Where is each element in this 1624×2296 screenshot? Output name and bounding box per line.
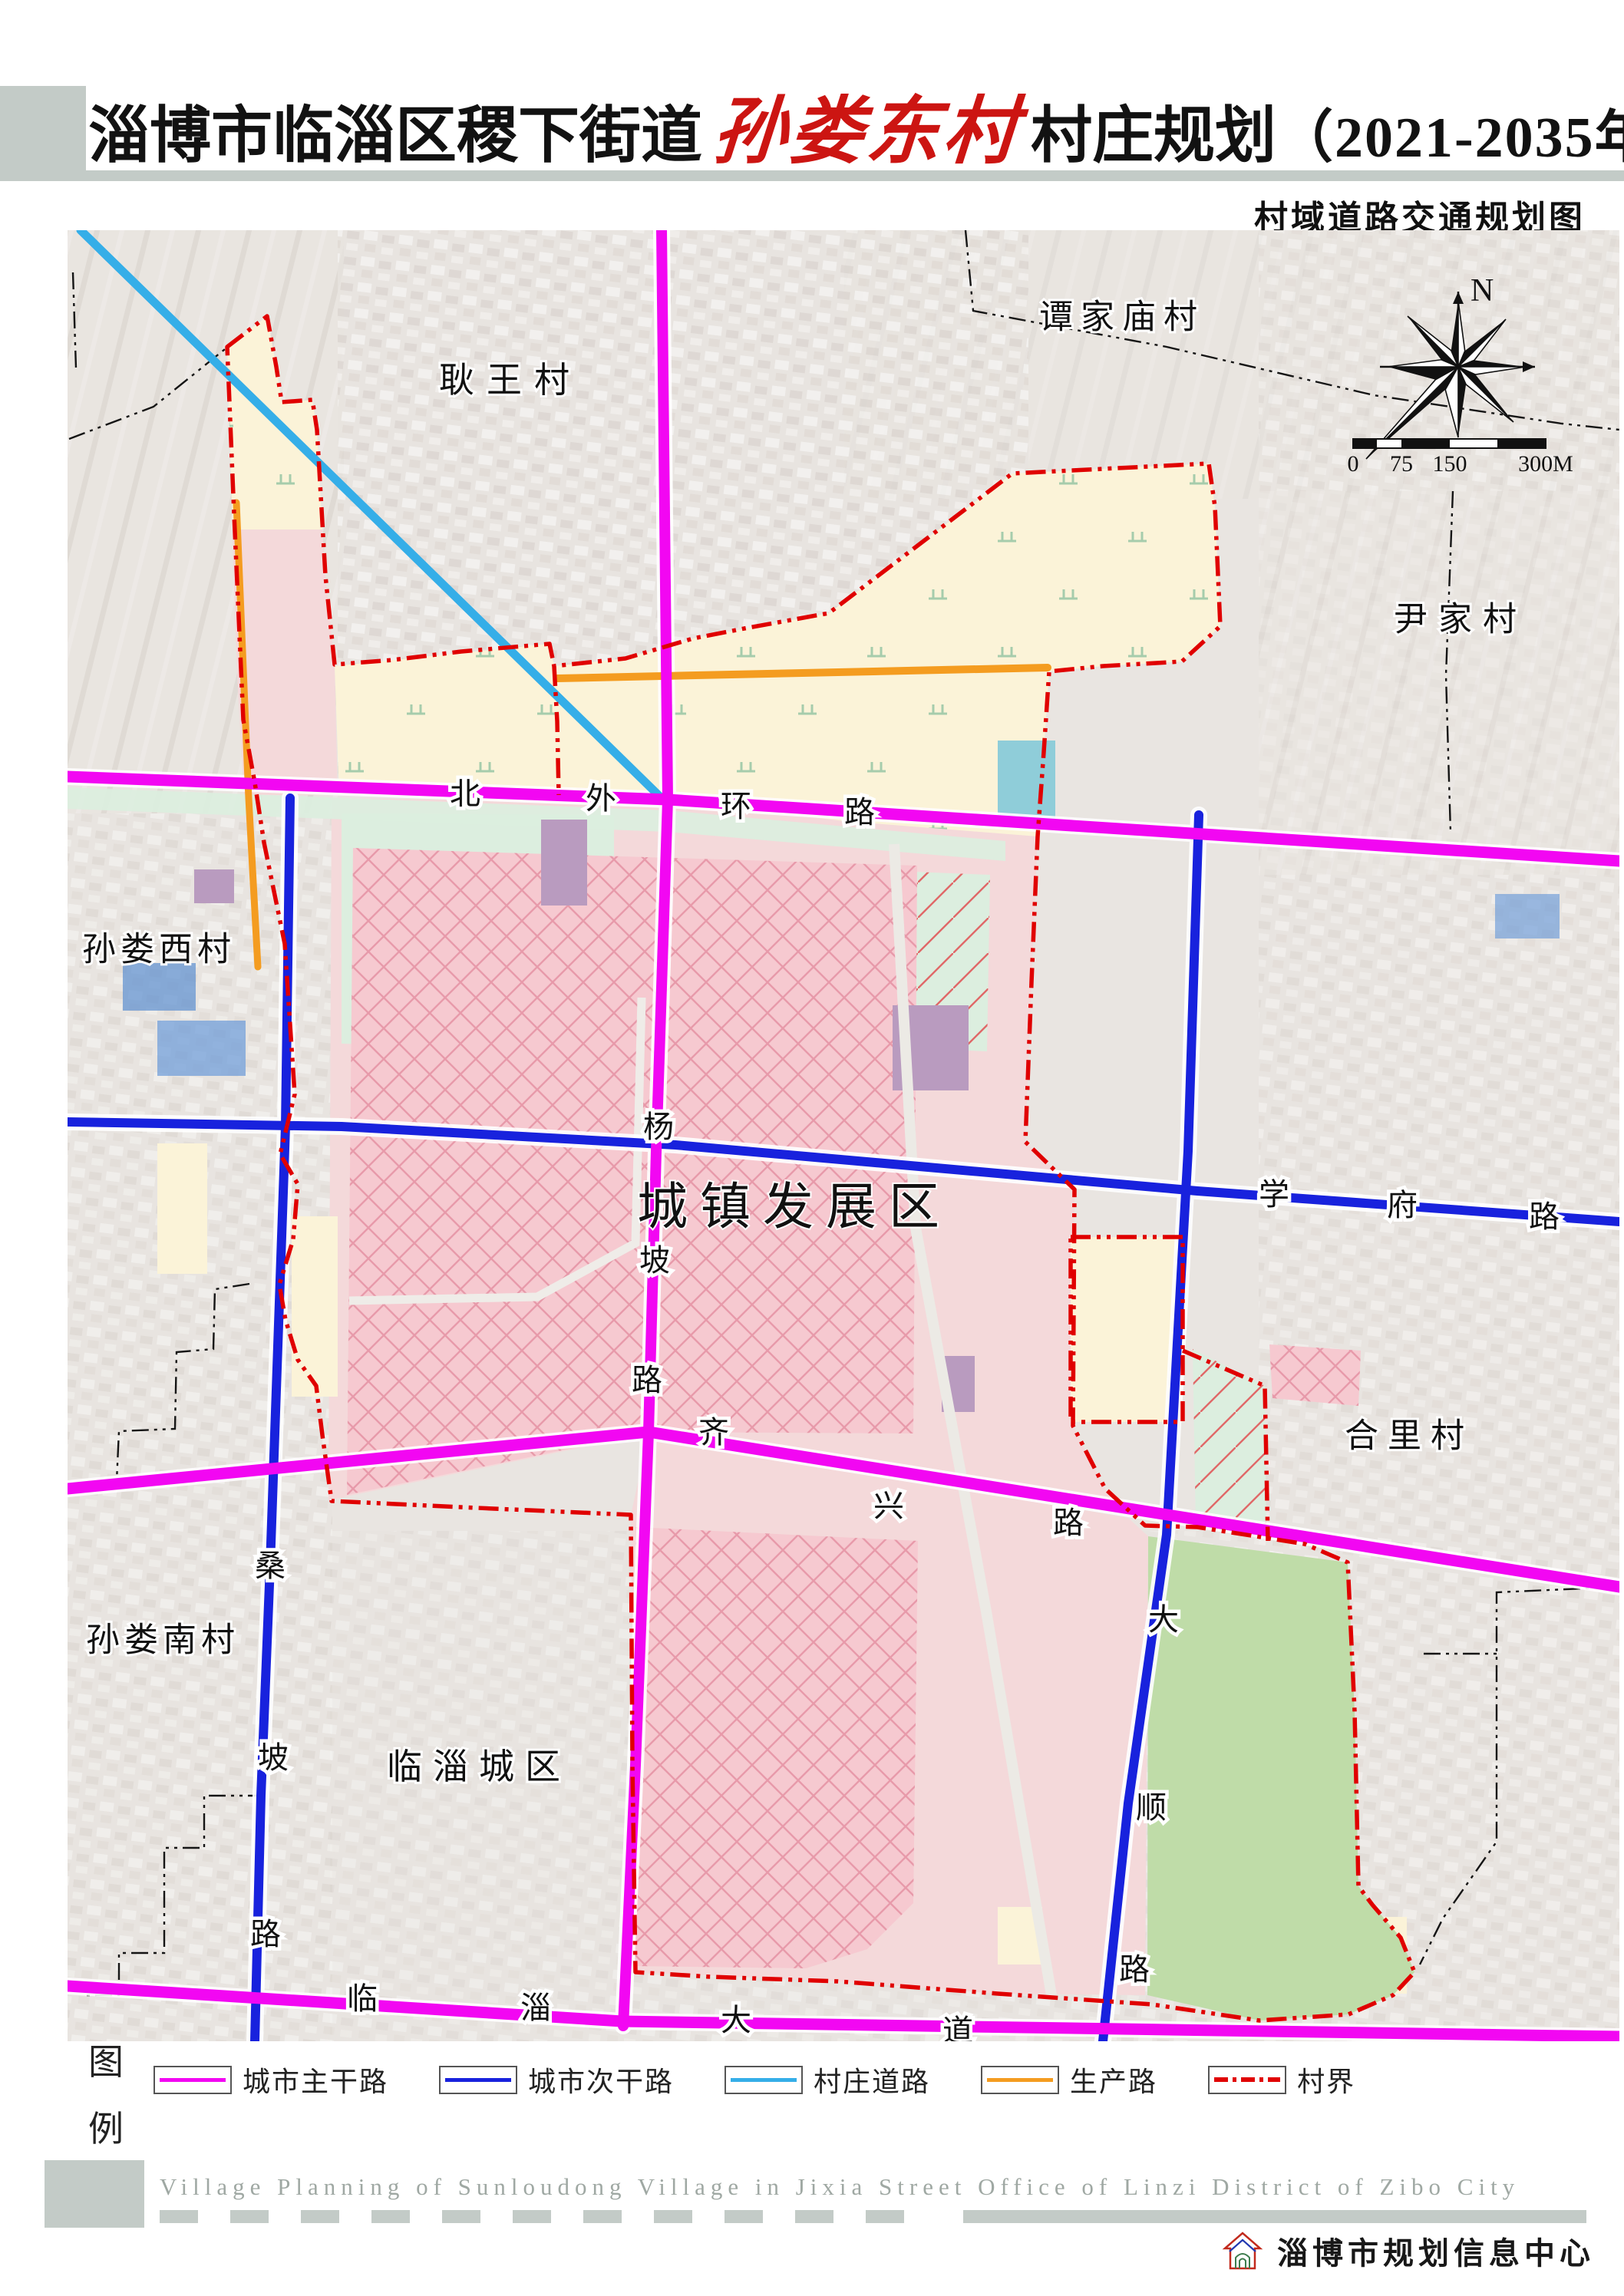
landuse-cyan-patch	[998, 741, 1055, 823]
footer-logo-block: 淄博市规划信息中心	[1219, 2227, 1595, 2275]
legend-label-village-boundary: 村界	[1297, 2060, 1355, 2100]
road-label-linzi-avenue: 临	[347, 1981, 378, 2016]
footer-english-title: Village Planning of Sunloudong Village i…	[160, 2173, 1520, 2201]
road-label-yangpo-road: 坡	[639, 1243, 670, 1278]
road-label-qixing-road: 路	[1053, 1506, 1084, 1540]
road-label-dashun-road: 大	[1148, 1602, 1179, 1637]
legend-item-village-boundary: 村界	[1208, 2060, 1355, 2100]
title-years: （2021-2035年）	[1276, 107, 1624, 170]
road-label-linzi-avenue: 淄	[520, 1991, 551, 2025]
road-label-linzi-avenue: 道	[942, 2014, 973, 2041]
map-label-gengwangcun: 耿王村	[439, 361, 582, 400]
road-label-beiwaihuan-road: 外	[586, 781, 616, 816]
footer-solid-bar	[963, 2210, 1586, 2223]
legend-item-city-secondary-road: 城市次干路	[439, 2060, 674, 2100]
legend-swatch-production-road	[981, 2066, 1059, 2094]
legend-title-char: 图	[87, 2029, 124, 2096]
legend-swatch-village-boundary	[1208, 2066, 1286, 2094]
title-suffix: 村庄规划	[1031, 103, 1276, 170]
title-village-name: 孙娄东村	[698, 81, 1034, 181]
factory-roof	[157, 1021, 246, 1076]
map-label-sunlouxicun: 孙娄西村	[82, 930, 236, 968]
map-label-sunlounancun: 孙娄南村	[86, 1621, 239, 1658]
planning-map: N 075150300M 耿王村谭家庙村尹家村孙娄西村合里村孙娄南村临淄城区 北…	[68, 230, 1619, 2041]
road-label-linzi-avenue: 大	[721, 2003, 751, 2037]
road-label-beiwaihuan-road: 路	[844, 795, 875, 830]
legend-item-city-main-road: 城市主干路	[153, 2060, 388, 2100]
legend-swatch-village-road	[725, 2066, 803, 2094]
road-label-beiwaihuan-road: 环	[721, 789, 751, 823]
legend-label-city-secondary-road: 城市次干路	[528, 2060, 674, 2100]
legend-item-village-road: 村庄道路	[725, 2060, 930, 2100]
zone-label-development-area: 城镇发展区	[637, 1179, 952, 1235]
planning-center-name: 淄博市规划信息中心	[1277, 2228, 1595, 2273]
road-label-yangpo-road: 路	[632, 1363, 662, 1397]
scale-label: 75	[1390, 451, 1413, 477]
factory-roof	[1495, 894, 1560, 939]
road-label-xuefu-road: 路	[1529, 1199, 1560, 1234]
map-label-tanjiamiaocun: 谭家庙村	[1039, 298, 1205, 335]
map-label-helicun: 合里村	[1345, 1417, 1474, 1454]
north-label: N	[1471, 273, 1494, 308]
footer-accent-square	[45, 2160, 144, 2228]
planning-center-logo-icon	[1219, 2227, 1266, 2275]
legend-label-village-road: 村庄道路	[814, 2060, 930, 2100]
title-prefix: 淄博市临淄区稷下街道	[88, 103, 702, 170]
legend-item-production-road: 生产路	[981, 2060, 1157, 2100]
road-label-sangpo-road: 路	[250, 1917, 281, 1951]
map-label-linzichengqu: 临淄城区	[387, 1747, 571, 1786]
legend-swatch-city-main-road	[153, 2066, 232, 2094]
scale-label: 150	[1433, 451, 1467, 477]
scale-label: 300M	[1518, 451, 1573, 477]
road-label-dashun-road: 顺	[1136, 1790, 1167, 1825]
road-label-qixing-road: 兴	[873, 1489, 904, 1523]
road-label-sangpo-road: 坡	[258, 1740, 289, 1775]
road-label-xuefu-road: 学	[1259, 1177, 1289, 1212]
scale-label: 0	[1348, 451, 1359, 477]
road-label-dashun-road: 路	[1119, 1952, 1150, 1987]
page-title: 淄博市临淄区稷下街道孙娄东村村庄规划（2021-2035年）	[88, 81, 1619, 181]
header-accent-square	[0, 86, 86, 179]
legend-label-production-road: 生产路	[1070, 2060, 1157, 2100]
factory-roof	[123, 963, 196, 1011]
legend-label-city-main-road: 城市主干路	[243, 2060, 388, 2100]
road-label-beiwaihuan-road: 北	[450, 777, 480, 811]
road-label-xuefu-road: 府	[1387, 1188, 1418, 1222]
road-label-qixing-road: 齐	[698, 1415, 729, 1450]
legend-title: 图例	[87, 2029, 124, 2163]
road-label-sangpo-road: 桑	[255, 1549, 286, 1583]
map-label-yinjiacun: 尹家村	[1394, 600, 1527, 638]
legend-swatch-city-secondary-road	[439, 2066, 517, 2094]
legend-title-char: 例	[87, 2096, 124, 2162]
legend: 城市主干路城市次干路村庄道路生产路村界	[153, 2064, 1406, 2095]
footer-dashed-bar	[160, 2210, 927, 2223]
road-label-yangpo-road: 杨	[643, 1110, 674, 1144]
